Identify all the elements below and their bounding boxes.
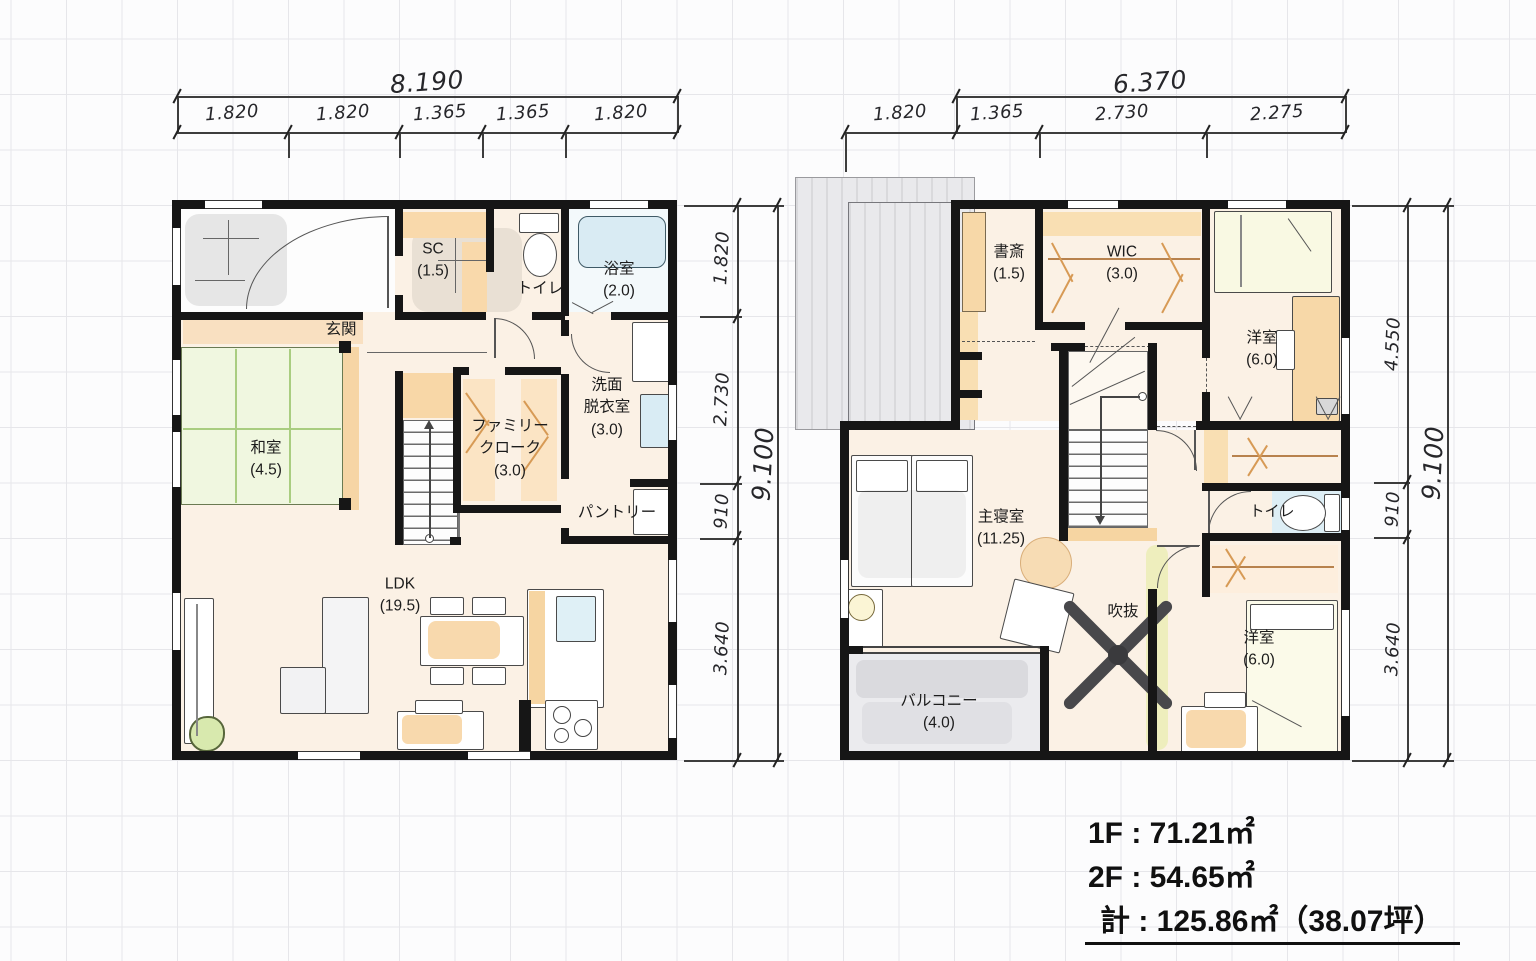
dim-segment-label: 2.730 bbox=[710, 371, 734, 426]
room-label-text: 洋室 bbox=[1246, 328, 1278, 350]
wall-segment bbox=[395, 371, 403, 545]
tatami-edge-board bbox=[343, 347, 359, 510]
dim-total-label: 8.190 bbox=[389, 65, 465, 99]
room-label-text: 和室 bbox=[250, 438, 282, 460]
dining-chair bbox=[430, 597, 464, 615]
dim-segment-label: 1.820 bbox=[872, 101, 927, 126]
bookshelf-stub bbox=[956, 352, 982, 360]
dim-total-label: 9.100 bbox=[747, 426, 780, 501]
dimension-leader bbox=[399, 132, 401, 158]
room-label-balcony: バルコニー(4.0) bbox=[900, 691, 977, 736]
wall-stub bbox=[849, 646, 863, 654]
dining-chair bbox=[430, 667, 464, 685]
dim-segment-label: 1.365 bbox=[969, 101, 1024, 126]
room-size-text: (19.5) bbox=[380, 596, 421, 618]
room-label-void: 吹抜 bbox=[1107, 601, 1138, 623]
dim-segment-label: 2.730 bbox=[1094, 101, 1149, 126]
open-boundary bbox=[962, 341, 1035, 342]
room-label-text: 主寝室 bbox=[977, 507, 1025, 529]
hanger-pole bbox=[1232, 455, 1338, 457]
window bbox=[172, 360, 181, 415]
room-label-toilet: トイレ bbox=[517, 278, 564, 300]
wall-stub bbox=[339, 341, 351, 353]
dimension-leader bbox=[845, 132, 847, 172]
room-label-washroom: 洗面脱衣室(3.0) bbox=[584, 374, 631, 441]
dim-segment-label: 1.365 bbox=[412, 101, 467, 126]
wall-segment bbox=[561, 536, 668, 544]
desk-chair bbox=[1276, 330, 1295, 370]
room-label-text: 吹抜 bbox=[1107, 601, 1138, 623]
dimension-leader bbox=[1039, 132, 1041, 158]
dining-chair bbox=[472, 667, 506, 685]
wall-segment bbox=[951, 200, 1350, 209]
room-size-text: (4.5) bbox=[250, 460, 282, 482]
dimension-leader bbox=[482, 132, 484, 158]
wall-segment bbox=[840, 421, 960, 430]
window bbox=[668, 685, 677, 738]
window bbox=[172, 228, 181, 285]
stair-arrow-line bbox=[1100, 396, 1102, 518]
room-label-pantry: パントリー bbox=[578, 502, 656, 524]
stair-arrow-line bbox=[1100, 396, 1140, 398]
wall-segment bbox=[1125, 322, 1210, 330]
wall-segment bbox=[668, 200, 677, 760]
dim-segment-label: 1.820 bbox=[593, 101, 648, 126]
desk-wood-wash bbox=[1186, 710, 1246, 748]
dim-segment-label: 1.820 bbox=[315, 101, 370, 126]
window bbox=[298, 751, 360, 760]
door-leaf bbox=[1157, 545, 1199, 547]
room-size-text: (4.0) bbox=[900, 713, 977, 735]
room-label-text: 玄関 bbox=[325, 319, 356, 341]
staircase bbox=[1068, 430, 1148, 528]
room-label-text: トイレ bbox=[1249, 501, 1294, 523]
room-label-washitsu: 和室(4.5) bbox=[250, 438, 282, 483]
dimension-line bbox=[1352, 760, 1454, 762]
dim-total-label: 6.370 bbox=[1112, 65, 1188, 99]
room-label-ldk: LDK(19.5) bbox=[380, 574, 421, 619]
pillow bbox=[916, 460, 968, 492]
dim-total-label: 9.100 bbox=[1417, 425, 1450, 500]
dim-segment-label: 910 bbox=[711, 493, 734, 530]
room-label-text: トイレ bbox=[517, 278, 564, 300]
room-label-text: パントリー bbox=[578, 502, 656, 524]
window bbox=[1228, 200, 1286, 209]
door-leaf bbox=[1194, 430, 1196, 470]
floorplan-sheet: 8.190 1.820 1.820 1.365 1.365 1.820 bbox=[0, 0, 1536, 961]
blanket-shade bbox=[858, 490, 966, 578]
dim-segment-label: 910 bbox=[1382, 491, 1405, 528]
closet-shelf bbox=[1204, 430, 1228, 483]
room-label-text: 浴室 bbox=[603, 259, 635, 281]
wall-segment bbox=[561, 320, 569, 336]
stair-landing-edge bbox=[1063, 528, 1157, 541]
wall-segment bbox=[1196, 421, 1350, 430]
room-label-family-cloak: ファミリークローク(3.0) bbox=[471, 415, 549, 482]
staircase bbox=[403, 420, 458, 545]
wall-segment bbox=[486, 209, 494, 272]
toilet-tank bbox=[519, 213, 559, 233]
wall-segment bbox=[505, 367, 561, 375]
room-label-text: ファミリー bbox=[471, 415, 549, 437]
stair-arrow-down bbox=[1095, 516, 1105, 525]
summary-line-2f: 2F : 54.65㎡ bbox=[1088, 856, 1444, 900]
wall-segment bbox=[172, 751, 677, 760]
dim-segment-label: 3.640 bbox=[710, 620, 734, 675]
dining-chair bbox=[472, 597, 506, 615]
wic-shelf bbox=[1043, 212, 1201, 236]
wall-segment bbox=[1051, 343, 1085, 351]
toilet-tank bbox=[1324, 494, 1340, 532]
wall-segment bbox=[561, 528, 569, 536]
lamp bbox=[848, 594, 875, 621]
window bbox=[840, 560, 849, 618]
room-size-text: (2.0) bbox=[603, 281, 635, 303]
dimension-leader bbox=[288, 132, 290, 158]
room-label-text: WIC bbox=[1106, 242, 1138, 264]
wall-segment bbox=[453, 367, 461, 513]
wall-segment bbox=[630, 479, 668, 487]
table-wood-wash bbox=[428, 621, 500, 659]
room-size-text: (11.25) bbox=[977, 529, 1025, 551]
sliding-window bbox=[860, 646, 1040, 648]
kitchen-wood-side bbox=[529, 591, 545, 704]
dimension-line bbox=[845, 132, 1345, 134]
wall-segment bbox=[395, 312, 486, 320]
wall-segment bbox=[1202, 533, 1210, 597]
dim-segment-label: 2.275 bbox=[1249, 101, 1304, 126]
hanger-pole bbox=[1212, 566, 1334, 568]
room-label-text: 洋室 bbox=[1243, 628, 1275, 650]
window bbox=[668, 385, 677, 440]
dim-segment-label: 1.820 bbox=[710, 230, 734, 285]
door-leaf bbox=[387, 216, 389, 308]
bed bbox=[1214, 211, 1332, 293]
window bbox=[1341, 498, 1350, 530]
window bbox=[1341, 338, 1350, 414]
dim-segment-label: 1.820 bbox=[204, 101, 259, 126]
stair-closet bbox=[399, 373, 458, 418]
tatami-line bbox=[289, 349, 291, 503]
wall-segment bbox=[840, 751, 1350, 760]
window bbox=[1068, 200, 1118, 209]
entry-step-line bbox=[367, 352, 487, 353]
room-label-text: SC bbox=[417, 239, 449, 261]
open-boundary bbox=[1157, 426, 1196, 427]
wall-segment bbox=[1202, 392, 1210, 421]
room-label-text: 書斎 bbox=[993, 242, 1025, 264]
bookshelf-strip bbox=[958, 312, 978, 420]
wall-segment bbox=[532, 312, 565, 320]
bookshelf-stub bbox=[956, 390, 982, 398]
window bbox=[1341, 610, 1350, 716]
burner bbox=[553, 706, 571, 724]
hatch-line bbox=[455, 238, 456, 293]
window bbox=[172, 593, 181, 650]
dimension-leader bbox=[565, 132, 567, 158]
void-x-center bbox=[1108, 645, 1128, 665]
pillow bbox=[1250, 604, 1334, 630]
room-label-study: 書斎(1.5) bbox=[993, 242, 1025, 287]
dimension-line bbox=[1352, 205, 1454, 207]
wall-segment bbox=[611, 312, 668, 320]
dim-segment-label: 1.365 bbox=[495, 101, 550, 126]
room-size-text: (3.0) bbox=[1106, 264, 1138, 286]
wall-segment bbox=[395, 209, 403, 256]
desk-chair bbox=[1204, 692, 1246, 708]
wall-segment bbox=[1148, 589, 1157, 760]
dim-segment-label: 4.550 bbox=[1381, 316, 1405, 371]
tatami-line bbox=[235, 349, 237, 503]
door-leaf bbox=[1208, 491, 1210, 533]
washing-machine bbox=[632, 322, 670, 382]
room-label-master: 主寝室(11.25) bbox=[977, 507, 1025, 552]
dimension-leader bbox=[1206, 132, 1208, 158]
counter-wood-wash bbox=[402, 715, 462, 744]
wall-segment bbox=[1035, 209, 1043, 330]
summary-underline bbox=[1085, 942, 1460, 945]
wall-segment bbox=[1202, 533, 1350, 541]
wall-segment bbox=[1202, 209, 1210, 358]
room-label-text: 洗面 bbox=[584, 374, 631, 396]
hatch-line bbox=[228, 220, 229, 275]
room-size-text: (3.0) bbox=[584, 419, 631, 441]
room-label-toilet2: トイレ bbox=[1249, 501, 1294, 523]
room-size-text: (3.0) bbox=[471, 460, 549, 482]
open-boundary bbox=[1085, 346, 1150, 347]
room-label-text: 脱衣室 bbox=[584, 397, 631, 419]
window bbox=[172, 432, 181, 487]
wall-segment bbox=[1059, 343, 1068, 541]
stair-arrow-line bbox=[429, 428, 431, 538]
room-label-bedroom1: 洋室(6.0) bbox=[1246, 328, 1278, 373]
sofa-back bbox=[322, 597, 369, 714]
burner bbox=[574, 719, 592, 737]
area-summary: 1F : 71.21㎡ 2F : 54.65㎡ 計 : 125.86㎡（38.0… bbox=[1088, 812, 1444, 944]
wall-segment bbox=[1040, 646, 1049, 760]
window bbox=[205, 200, 262, 209]
dimension-line bbox=[1447, 205, 1449, 760]
room-label-bedroom2: 洋室(6.0) bbox=[1243, 628, 1275, 673]
pillow bbox=[856, 460, 908, 492]
room-label-sc: SC(1.5) bbox=[417, 239, 449, 284]
wall-segment bbox=[1035, 322, 1085, 330]
pocket-door bbox=[1206, 358, 1207, 392]
door-leaf bbox=[494, 318, 496, 358]
wall-segment bbox=[453, 505, 561, 513]
room-size-text: (1.5) bbox=[993, 264, 1025, 286]
tatami-line bbox=[183, 428, 341, 430]
stair-arrow-up bbox=[424, 420, 434, 429]
room-size-text: (1.5) bbox=[417, 261, 449, 283]
sliding-window bbox=[860, 652, 1040, 654]
desk-chair bbox=[415, 700, 463, 714]
kitchen-sink bbox=[556, 596, 596, 642]
wall-stub bbox=[519, 700, 531, 751]
vanity-sink bbox=[640, 394, 670, 448]
dim-segment-label: 3.640 bbox=[1381, 621, 1405, 676]
tv-board-line bbox=[196, 604, 198, 736]
summary-line-total: 計 : 125.86㎡（38.07坪） bbox=[1088, 900, 1444, 944]
wall-segment bbox=[1202, 483, 1350, 491]
window bbox=[468, 751, 530, 760]
wall-segment bbox=[1148, 343, 1157, 430]
dimension-line bbox=[177, 132, 677, 134]
wall-stub bbox=[339, 498, 351, 510]
room-label-genkan: 玄関 bbox=[325, 319, 356, 341]
room-size-text: (6.0) bbox=[1243, 650, 1275, 672]
dimension-line bbox=[777, 205, 779, 760]
pillow-line bbox=[1240, 215, 1242, 287]
room-label-wic: WIC(3.0) bbox=[1106, 242, 1138, 287]
window bbox=[590, 200, 648, 209]
shoe-closet-shelf bbox=[399, 212, 487, 238]
toilet-bowl bbox=[523, 233, 557, 277]
sofa-seat bbox=[280, 667, 326, 714]
study-desk bbox=[962, 212, 986, 312]
window bbox=[668, 560, 677, 622]
room-label-bath: 浴室(2.0) bbox=[603, 259, 635, 304]
room-label-text: LDK bbox=[380, 574, 421, 596]
hatch-line bbox=[195, 280, 245, 281]
burner bbox=[554, 728, 569, 743]
shoe-closet-shelf bbox=[462, 242, 487, 312]
stair-winder bbox=[1068, 351, 1148, 430]
summary-line-1f: 1F : 71.21㎡ bbox=[1088, 812, 1444, 856]
room-size-text: (6.0) bbox=[1246, 350, 1278, 372]
hatch-line bbox=[203, 238, 259, 239]
room-label-text: バルコニー bbox=[900, 691, 977, 713]
wall-stub bbox=[450, 537, 461, 545]
room-label-text: クローク bbox=[471, 438, 549, 460]
wall-segment bbox=[561, 374, 569, 479]
plant bbox=[189, 716, 225, 752]
